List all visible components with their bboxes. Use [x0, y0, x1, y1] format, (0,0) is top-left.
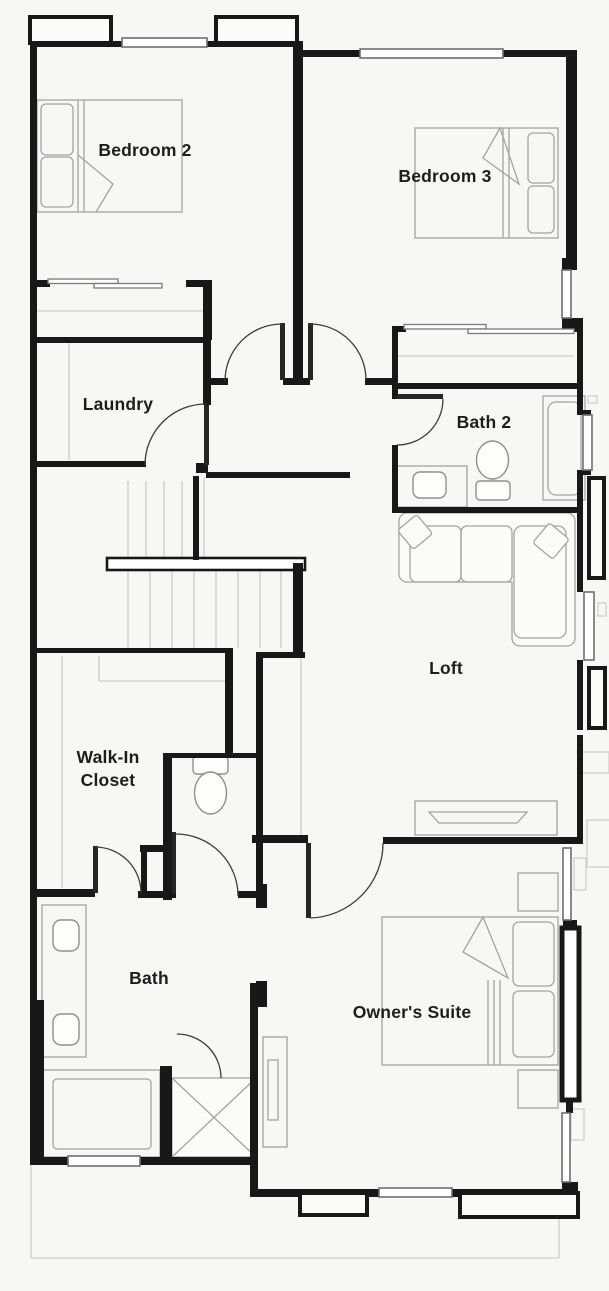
stair-rail: [107, 558, 305, 570]
furniture: [37, 100, 575, 1147]
duvet-fold: [463, 917, 508, 978]
footprint-step: [587, 820, 609, 867]
bath2-vanity: [394, 466, 467, 507]
sink-icon: [413, 472, 446, 498]
room-label-loft: Loft: [429, 658, 463, 678]
tv-icon: [429, 812, 527, 823]
room-label-bath2: Bath 2: [457, 412, 512, 432]
footprint-step: [571, 1109, 584, 1140]
shower-door-arc: [177, 1034, 221, 1078]
stair-treads-upper: [128, 478, 204, 558]
window: [562, 1113, 570, 1182]
duvet-fold: [78, 155, 113, 212]
sliding-closet-door: [404, 325, 486, 330]
floor-plan-page: Bedroom 2 Bedroom 3 Laundry Bath 2 Loft …: [0, 0, 609, 1291]
fixtures: [37, 311, 585, 1157]
door-walk-in-closet: [93, 846, 141, 893]
dresser-icon: [263, 1037, 287, 1147]
walls: [30, 41, 591, 1197]
floor-plan-svg: Bedroom 2 Bedroom 3 Laundry Bath 2 Loft …: [0, 0, 609, 1291]
room-label-bedroom3: Bedroom 3: [398, 166, 491, 186]
door-owners-suite: [306, 843, 383, 918]
bed-icon-owners-suite: [382, 917, 558, 1065]
sliding-closet-door: [468, 329, 574, 334]
vanity-owners-bath: [42, 905, 86, 1057]
door-water-closet: [172, 832, 238, 896]
sofa-icon: [397, 513, 575, 646]
window: [583, 415, 592, 470]
sink-icon: [53, 920, 79, 951]
footprint-step: [574, 858, 586, 890]
room-label-walk-in-closet-line1: Walk-In: [77, 747, 140, 767]
shower-icon: [172, 1034, 256, 1157]
nightstand-icon: [518, 1070, 558, 1108]
pillow-icon: [528, 186, 554, 233]
door-laundry: [145, 404, 209, 465]
door-bath2: [397, 394, 443, 445]
window: [68, 1156, 140, 1166]
toilet-icon-bath2: [476, 441, 510, 500]
room-label-owners-suite: Owner's Suite: [353, 1002, 472, 1022]
sliding-closet-door: [94, 284, 162, 289]
window: [584, 592, 594, 660]
window: [360, 49, 503, 58]
pillow-icon: [41, 104, 73, 155]
sliding-closet-door: [48, 279, 118, 284]
window: [563, 848, 571, 920]
window: [562, 270, 571, 318]
stair-treads-lower: [128, 571, 281, 648]
pillow-icon: [513, 991, 554, 1057]
footprint-step: [598, 603, 606, 616]
window: [379, 1188, 452, 1197]
tub-icon-owners-bath: [43, 1070, 160, 1157]
footprint-step: [588, 396, 597, 403]
sink-icon: [53, 1014, 79, 1045]
nightstand-icon: [518, 873, 558, 911]
room-label-bath: Bath: [129, 968, 169, 988]
room-label-walk-in-closet-line2: Closet: [81, 770, 136, 790]
door-bedroom3: [308, 323, 366, 380]
window: [122, 38, 207, 47]
pillow-icon: [528, 133, 554, 183]
room-label-laundry: Laundry: [83, 394, 154, 414]
toilet-icon-wc: [193, 756, 228, 814]
tv-console-icon: [415, 801, 557, 835]
door-bedroom2: [225, 323, 285, 381]
footprint-step: [582, 752, 609, 773]
room-label-bedroom2: Bedroom 2: [98, 140, 191, 160]
pillow-icon: [513, 922, 554, 986]
pillow-icon: [41, 157, 73, 207]
